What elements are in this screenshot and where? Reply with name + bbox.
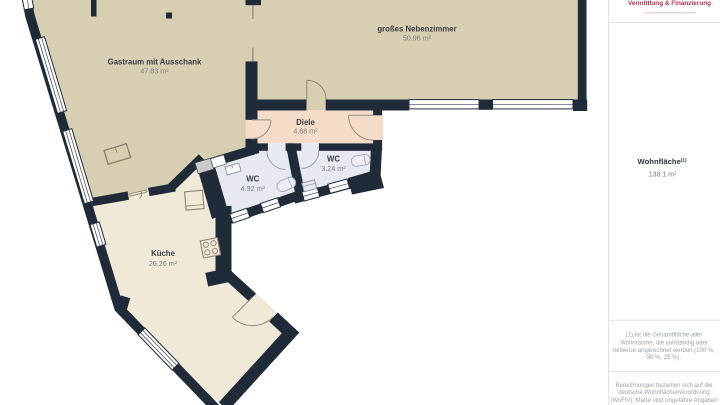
svg-text:großes Nebenzimmer: großes Nebenzimmer (377, 25, 456, 34)
svg-text:Wohnfläche(1): Wohnfläche(1) (637, 157, 687, 166)
svg-text:47.83 m²: 47.83 m² (140, 67, 169, 76)
svg-text:(WoFlV). Maße sind ungefähre A: (WoFlV). Maße sind ungefähre Angaben (610, 398, 717, 404)
svg-text:Gastraum mit Ausschank: Gastraum mit Ausschank (108, 58, 202, 67)
svg-text:4.68 m²: 4.68 m² (293, 127, 318, 136)
svg-text:deutsche Wohnflächenverordnung: deutsche Wohnflächenverordnung (618, 390, 709, 396)
svg-text:WC: WC (246, 175, 259, 184)
svg-text:WC: WC (327, 155, 340, 164)
svg-text:Küche: Küche (151, 249, 175, 258)
svg-text:3.24 m²: 3.24 m² (321, 164, 346, 173)
svg-text:Berechnungen beziehen sich auf: Berechnungen beziehen sich auf die (615, 383, 713, 389)
svg-text:Vermittlung & Finanzierung: Vermittlung & Finanzierung (628, 0, 711, 7)
svg-text:Wohnräume, die vollständig ode: Wohnräume, die vollständig oder (620, 340, 708, 346)
svg-text:50 %, 25 %).: 50 %, 25 %). (647, 355, 682, 361)
svg-text:50.96 m²: 50.96 m² (403, 34, 432, 43)
svg-text:(1) Ist die Gesamtfläche aller: (1) Ist die Gesamtfläche aller (626, 333, 703, 339)
svg-text:4.92 m²: 4.92 m² (241, 184, 266, 193)
svg-text:teilweise angerechnet werden (: teilweise angerechnet werden (100 %, (613, 348, 715, 354)
svg-text:26.26 m²: 26.26 m² (149, 259, 178, 268)
svg-text:138.1 m²: 138.1 m² (649, 171, 677, 178)
